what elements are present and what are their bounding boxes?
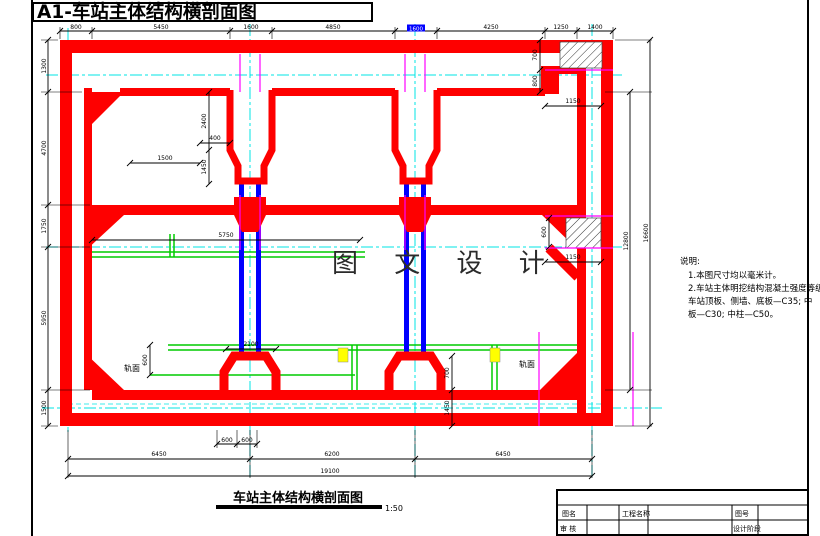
dim-beam-upper: 2400 — [201, 113, 208, 128]
dim-hatch-h: 1150 — [565, 254, 580, 261]
dim-beam-lower: 1450 — [201, 159, 208, 174]
right-wall-outer — [601, 40, 613, 426]
dim-plinth-w: 2100 — [243, 341, 258, 348]
hatch-mid-right — [566, 218, 601, 248]
tb-drawing-no-label: 图号 — [735, 510, 749, 518]
notes-line-3: 车站顶板、侧墙、底板—C35; 中 — [688, 296, 812, 307]
mid-slab — [92, 205, 578, 215]
roof-soffit-c — [437, 88, 545, 96]
caption-scale: 1:50 — [385, 504, 403, 513]
dim-bsmall-1: 600 — [241, 437, 253, 444]
dim-overall: 19100 — [320, 468, 339, 475]
caption-underline — [216, 505, 382, 509]
dim-haunch-len: 1500 — [157, 155, 172, 162]
roof-soffit-b — [272, 88, 395, 96]
roof-beam-1 — [230, 90, 272, 181]
tb-design-stage-label: 设计阶段 — [733, 524, 761, 533]
dim-top-3: 4850 — [325, 24, 340, 31]
drawing-canvas: A1-车站主体结构横剖面图 — [0, 0, 820, 536]
base-slab-inner — [92, 390, 578, 400]
dim-bsmall-0: 600 — [221, 437, 233, 444]
dim-mid-span: 5750 — [218, 232, 233, 239]
dim-left-1: 4700 — [41, 140, 48, 155]
sheet-title: A1-车站主体结构横剖面图 — [37, 1, 257, 23]
dim-top-6: 1250 — [553, 24, 568, 31]
base-slab-outer — [60, 413, 613, 426]
dim-corner-v2: 800 — [532, 75, 539, 87]
notes-heading: 说明: — [680, 256, 700, 267]
cad-sheet: A1-车站主体结构横剖面图 — [0, 0, 820, 536]
dim-top-2: 1600 — [243, 24, 258, 31]
dim-haunch-off: 400 — [209, 135, 221, 142]
drawing-caption: 车站主体结构横剖面图 1:50 — [216, 490, 403, 513]
dim-span-2: 6450 — [495, 451, 510, 458]
watermark: 图 文 设 计 — [332, 249, 559, 279]
dim-rail-h: 600 — [142, 354, 149, 366]
dim-top-1: 5450 — [153, 24, 168, 31]
dim-span-0: 6450 — [151, 451, 166, 458]
rail-surface-label-left: 轨面 — [124, 363, 140, 373]
dim-corner-h: 1150 — [565, 98, 580, 105]
dim-top-0: 800 — [70, 24, 82, 31]
title-block: 图名 工程名称 图号 审 核 设计阶段 — [557, 490, 808, 535]
dim-top-7: 1400 — [587, 24, 602, 31]
dim-left-3: 5950 — [41, 310, 48, 325]
notes-block: 说明: 1.本图尺寸均以毫米计。 2.车站主体明挖结构混凝土强度等级: 车站顶板… — [680, 256, 820, 320]
hatch-top-right — [560, 42, 602, 68]
dim-left-0: 1300 — [41, 58, 48, 73]
dim-hatch-v: 600 — [541, 226, 548, 238]
dim-span-1: 6200 — [324, 451, 339, 458]
roof-beam-2 — [395, 90, 437, 181]
dim-plinth-h: 700 — [444, 367, 451, 379]
dim-left-4: 1500 — [41, 400, 48, 415]
tb-project-name-label: 工程名称 — [622, 509, 650, 518]
rail-pad-right — [490, 348, 500, 362]
dim-corner-v1: 700 — [532, 49, 539, 61]
notes-line-4: 板—C30; 中柱—C50。 — [688, 309, 778, 320]
dim-left-2: 1750 — [41, 218, 48, 233]
dim-slab-t: 1450 — [444, 400, 451, 415]
notes-line-1: 1.本图尺寸均以毫米计。 — [688, 270, 781, 281]
dim-right-inner: 12800 — [623, 231, 630, 250]
caption-text: 车站主体结构横剖面图 — [233, 490, 363, 506]
dim-top-5: 4250 — [483, 24, 498, 31]
dim-right-outer: 16600 — [643, 223, 650, 242]
left-wall-outer — [60, 40, 72, 426]
rail-surface-label-right: 轨面 — [519, 359, 535, 369]
rail-pad-left — [338, 348, 348, 362]
notes-line-2: 2.车站主体明挖结构混凝土强度等级: — [688, 283, 820, 294]
tb-drawing-name-label: 图名 — [562, 509, 576, 518]
tb-review-label: 审 核 — [560, 524, 576, 533]
dim-top-4: 1600 — [409, 27, 423, 33]
roof-slab-outer — [60, 40, 613, 53]
roof-soffit-a — [120, 88, 230, 96]
